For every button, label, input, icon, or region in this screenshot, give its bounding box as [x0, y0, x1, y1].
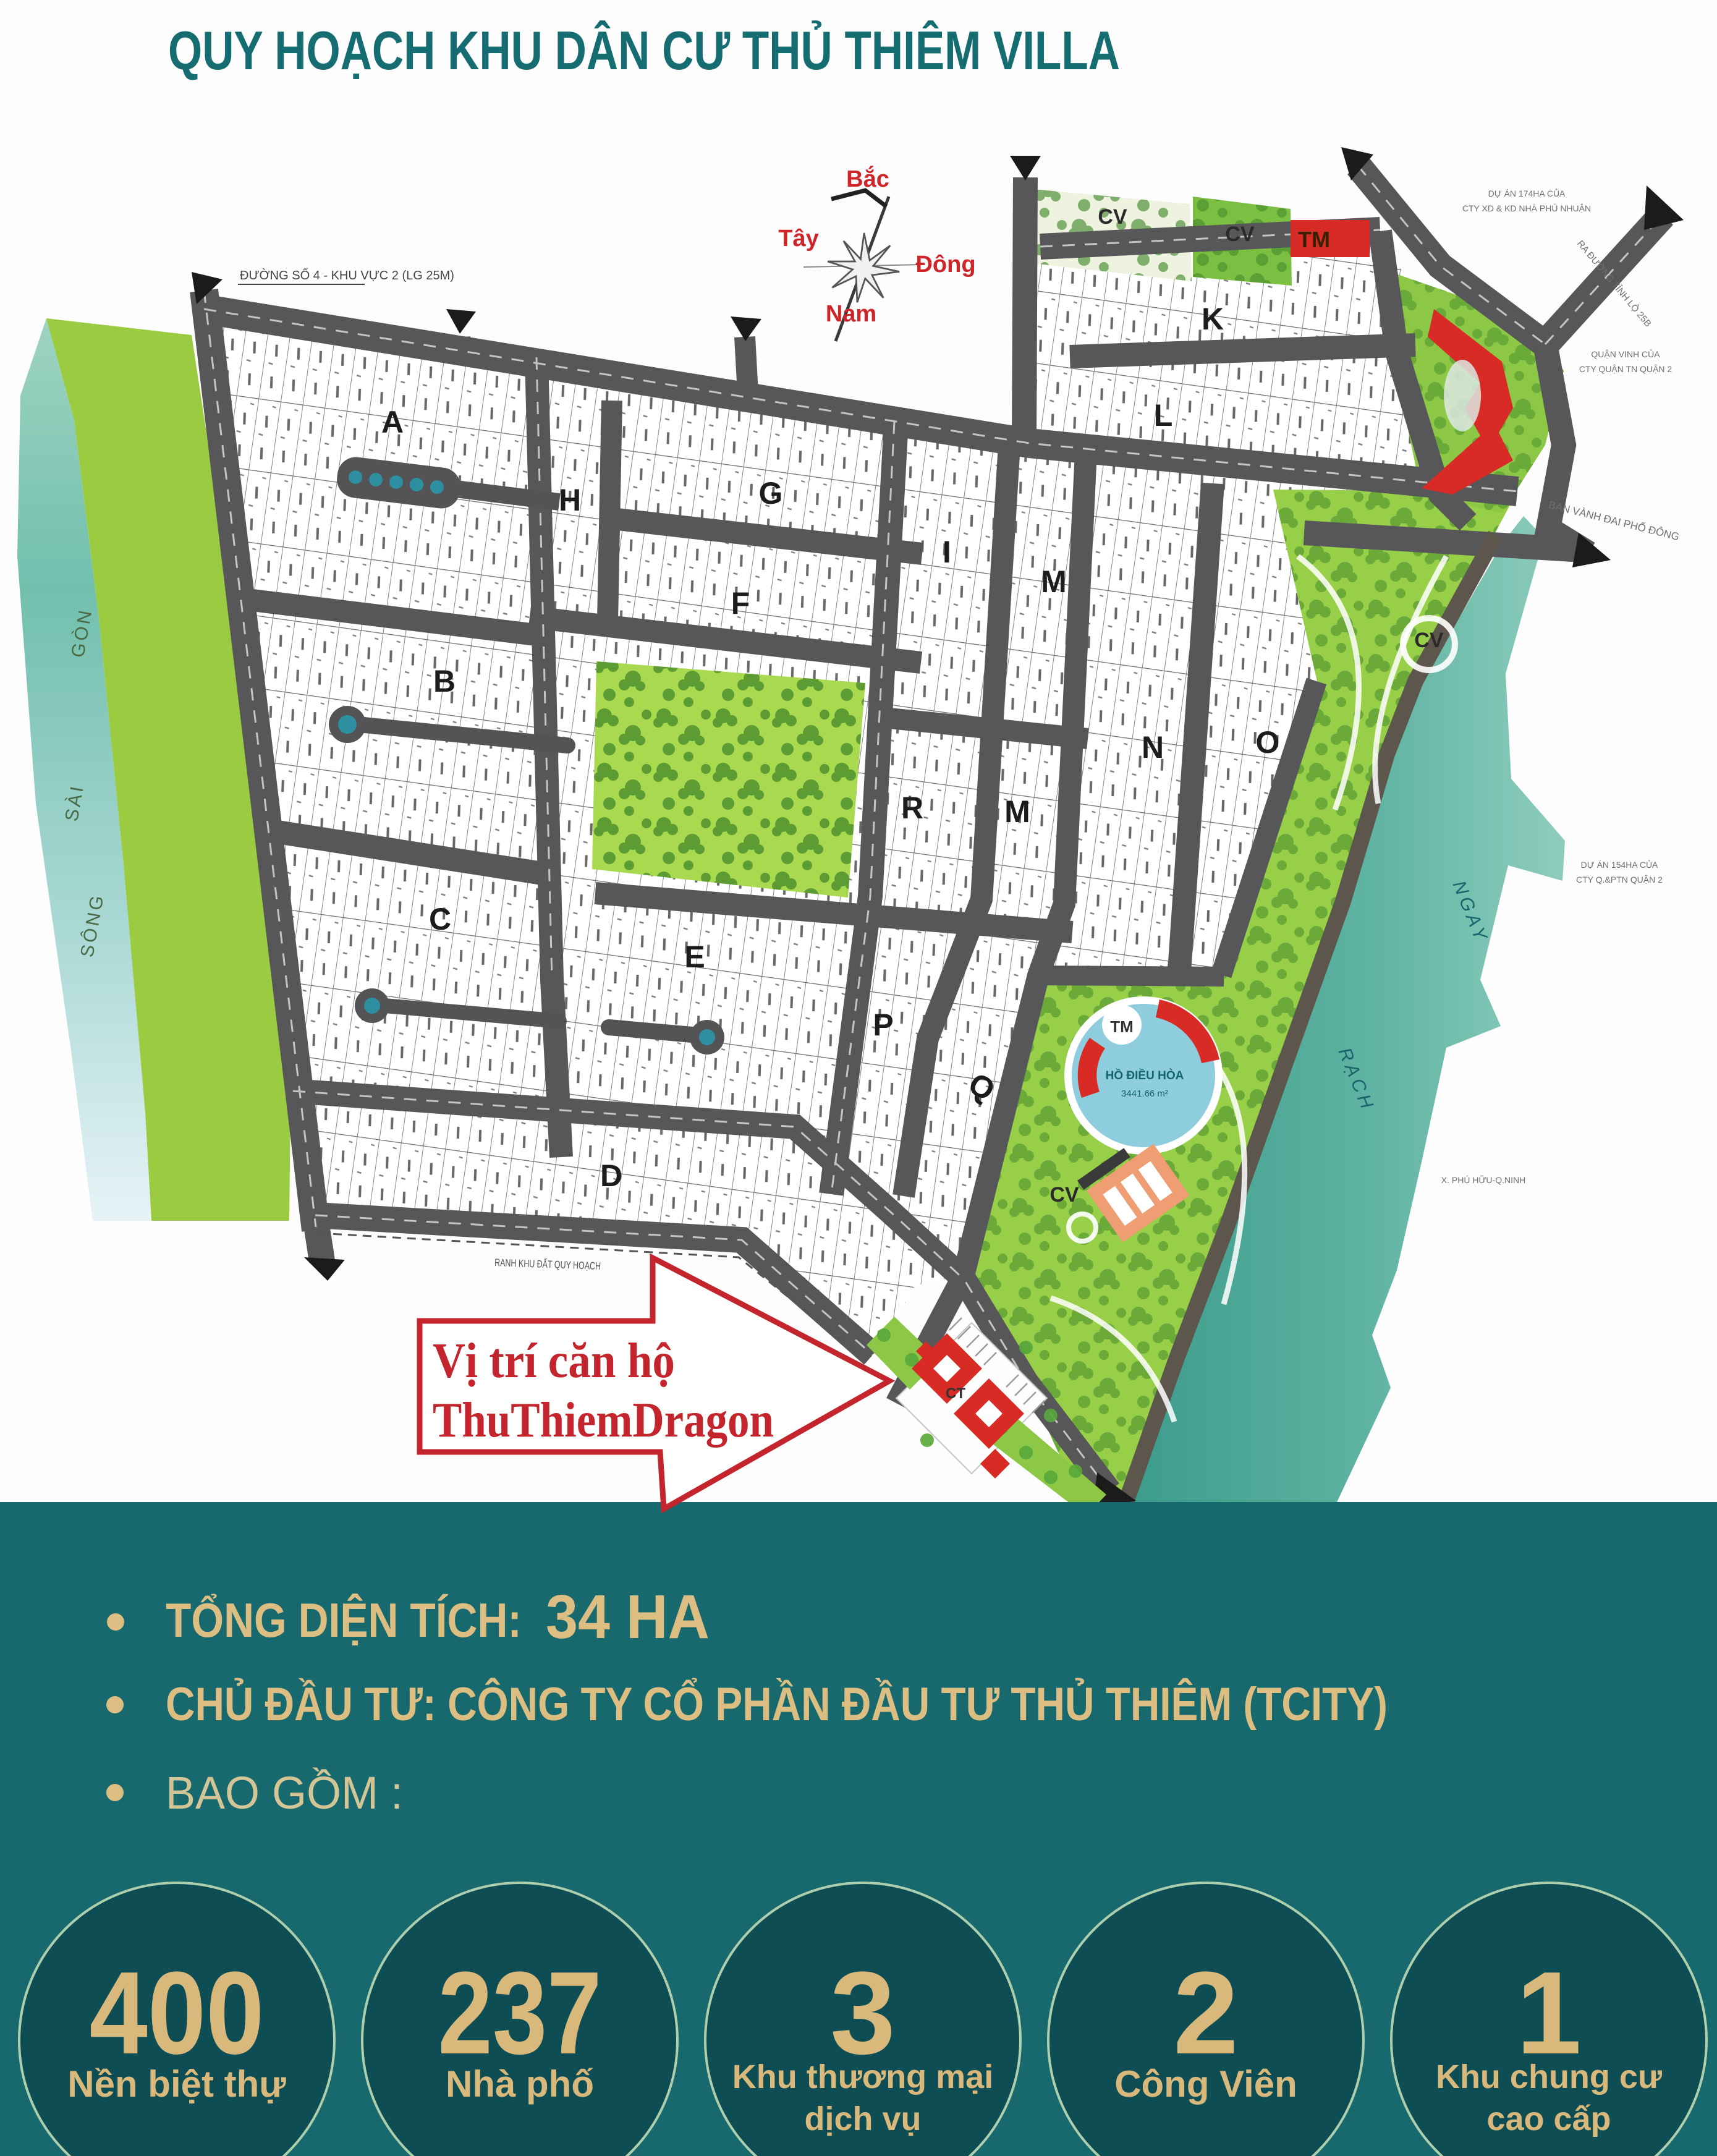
svg-text:N: N	[1142, 730, 1164, 765]
svg-text:I: I	[943, 535, 951, 569]
svg-text:ThuThiemDragon: ThuThiemDragon	[433, 1393, 774, 1448]
svg-text:CHỦ ĐẦU TƯ: CÔNG TY CỔ PHẦN ĐẦ: CHỦ ĐẦU TƯ: CÔNG TY CỔ PHẦN ĐẦU TƯ THỦ T…	[166, 1678, 1388, 1731]
svg-text:CT: CT	[946, 1385, 965, 1402]
svg-text:Đông: Đông	[915, 252, 975, 278]
svg-text:B: B	[433, 664, 456, 698]
svg-text:P: P	[873, 1008, 893, 1042]
svg-text:G: G	[759, 476, 783, 511]
svg-text:Nền biệt thự: Nền biệt thự	[67, 2063, 286, 2105]
svg-text:QUẬN VINH CỦA: QUẬN VINH CỦA	[1591, 349, 1660, 359]
svg-text:TM: TM	[1298, 227, 1330, 252]
svg-text:DỰ ÁN 154HA CỦA: DỰ ÁN 154HA CỦA	[1581, 859, 1658, 870]
svg-text:cao cấp: cao cấp	[1486, 2100, 1611, 2137]
svg-text:400: 400	[90, 1948, 265, 2079]
svg-text:R: R	[901, 791, 923, 825]
svg-text:QUY HOẠCH KHU DÂN CƯ THỦ THIÊM: QUY HOẠCH KHU DÂN CƯ THỦ THIÊM VILLA	[168, 20, 1120, 81]
svg-text:X. PHÚ HỮU-Q.NINH: X. PHÚ HỮU-Q.NINH	[1441, 1175, 1525, 1185]
svg-text:D: D	[600, 1158, 622, 1193]
svg-text:O: O	[1256, 725, 1280, 760]
svg-text:CTY Q.&PTN QUẬN 2: CTY Q.&PTN QUẬN 2	[1576, 875, 1663, 885]
svg-text:HỒ ĐIỀU HÒA: HỒ ĐIỀU HÒA	[1106, 1069, 1184, 1082]
svg-text:CV: CV	[1049, 1183, 1079, 1207]
svg-text:E: E	[684, 940, 705, 974]
svg-text:Công Viên: Công Viên	[1114, 2063, 1297, 2105]
svg-text:TM: TM	[1110, 1017, 1134, 1036]
svg-text:ĐƯỜNG SỐ 4 - KHU VỰC 2 (LG 25M: ĐƯỜNG SỐ 4 - KHU VỰC 2 (LG 25M)	[240, 268, 454, 282]
svg-text:M: M	[1004, 794, 1030, 829]
svg-text:CV: CV	[1414, 629, 1444, 652]
svg-text:DỰ ÁN 174HA CỦA: DỰ ÁN 174HA CỦA	[1488, 188, 1566, 198]
svg-text:dịch vụ: dịch vụ	[804, 2100, 921, 2137]
svg-text:Khu thương mại: Khu thương mại	[732, 2058, 993, 2095]
svg-text:A: A	[381, 405, 404, 439]
svg-text:Nhà phố: Nhà phố	[446, 2063, 594, 2105]
svg-text:CTY XD & KD NHÀ PHÚ NHUẬN: CTY XD & KD NHÀ PHÚ NHUẬN	[1462, 203, 1591, 213]
svg-text:L: L	[1154, 398, 1173, 433]
svg-text:Bắc: Bắc	[846, 165, 889, 192]
svg-text:C: C	[429, 902, 451, 936]
svg-text:2: 2	[1173, 1948, 1239, 2079]
svg-text:Vị trí căn hộ: Vị trí căn hộ	[433, 1334, 675, 1388]
svg-text:TỔNG DIỆN TÍCH:: TỔNG DIỆN TÍCH:	[166, 1593, 522, 1647]
svg-text:M: M	[1041, 564, 1067, 599]
svg-text:3441.66 m²: 3441.66 m²	[1121, 1089, 1168, 1099]
svg-text:CV: CV	[1098, 205, 1127, 229]
svg-text:237: 237	[438, 1948, 602, 2079]
svg-text:Nam: Nam	[826, 301, 876, 327]
svg-text:CV: CV	[1225, 223, 1255, 246]
svg-text:H: H	[559, 483, 581, 517]
svg-text:CTY QUẬN TN QUẬN 2: CTY QUẬN TN QUẬN 2	[1579, 364, 1672, 374]
svg-text:Khu chung cư: Khu chung cư	[1436, 2058, 1663, 2095]
svg-text:K: K	[1202, 302, 1224, 336]
svg-text:BAO GỒM :: BAO GỒM :	[166, 1767, 403, 1819]
svg-text:Tây: Tây	[778, 226, 818, 252]
svg-text:34 HA: 34 HA	[546, 1582, 710, 1652]
svg-text:F: F	[731, 586, 750, 621]
